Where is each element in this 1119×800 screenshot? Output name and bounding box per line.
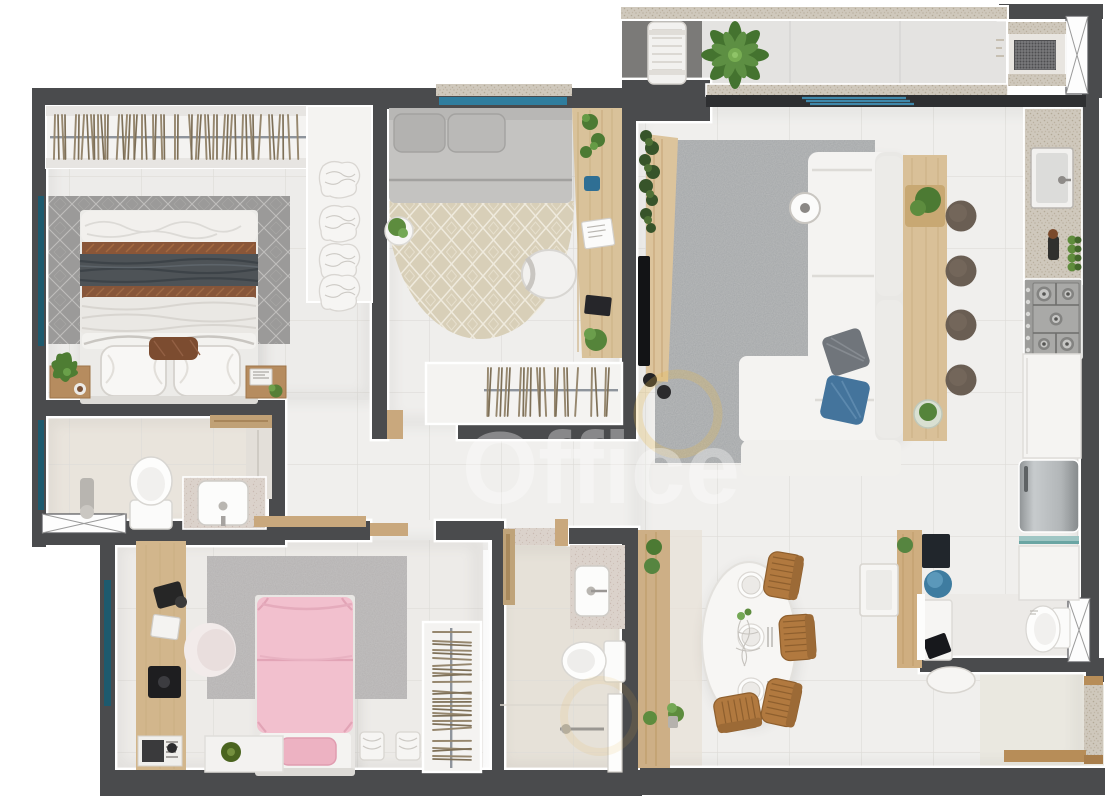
svg-text:Office: Office: [462, 411, 740, 525]
